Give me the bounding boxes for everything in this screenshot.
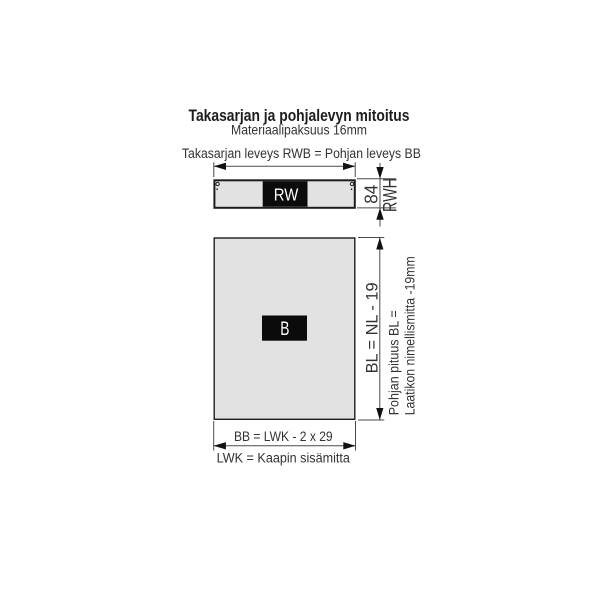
svg-text:Pohjan pituus BL =: Pohjan pituus BL = — [387, 310, 402, 415]
svg-text:RWH: RWH — [379, 178, 401, 212]
svg-text:B: B — [280, 319, 289, 340]
svg-text:Takasarjan leveys RWB = Pohjan: Takasarjan leveys RWB = Pohjan leveys BB — [182, 146, 421, 161]
svg-text:Materiaalipaksuus 16mm: Materiaalipaksuus 16mm — [231, 122, 367, 138]
svg-text:BB = LWK - 2 x 29: BB = LWK - 2 x 29 — [234, 429, 333, 444]
svg-text:Laatikon nimellismitta -19mm: Laatikon nimellismitta -19mm — [402, 256, 417, 415]
svg-text:RW: RW — [274, 184, 299, 204]
svg-text:BL = NL - 19: BL = NL - 19 — [363, 282, 382, 373]
svg-text:84: 84 — [360, 185, 381, 204]
svg-text:LWK = Kaapin sisämitta: LWK = Kaapin sisämitta — [217, 450, 351, 465]
